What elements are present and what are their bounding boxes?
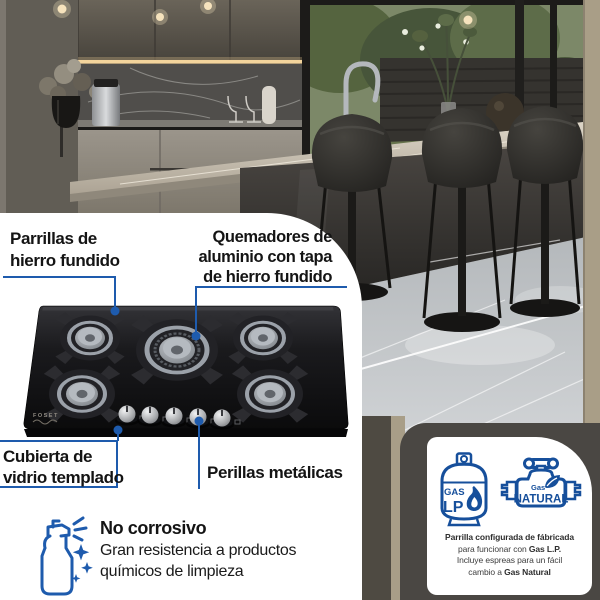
label-line: hierro fundido bbox=[10, 250, 120, 272]
label-line: vidrio templado bbox=[3, 467, 124, 488]
label-line: aluminio con tapa bbox=[158, 247, 332, 267]
label-perillas: Perillas metálicas bbox=[207, 463, 343, 483]
label-cubierta: Cubierta de vidrio templado bbox=[3, 446, 124, 488]
label-line: Cubierta de bbox=[3, 446, 124, 467]
label-line: de hierro fundido bbox=[158, 267, 332, 287]
label-quemadores: Quemadores de aluminio con tapa de hierr… bbox=[158, 227, 332, 287]
body-line: Gran resistencia a productos bbox=[100, 541, 296, 562]
label-parrillas: Parrillas de hierro fundido bbox=[10, 228, 120, 272]
paper-towel bbox=[262, 86, 276, 124]
lp-icon-lp-text: LP bbox=[443, 499, 464, 516]
label-line: Parrillas de bbox=[10, 228, 120, 250]
natural-icon-gas-text: Gas bbox=[531, 483, 545, 492]
note-line: para funcionar con Gas L.P. bbox=[427, 544, 592, 556]
no-corrosivo-body: Gran resistencia a productos químicos de… bbox=[100, 541, 296, 582]
note-line: Incluye espreas para un fácil bbox=[427, 555, 592, 567]
spray-bottle-icon bbox=[28, 514, 94, 600]
gas-card-note: Parrilla configurada de fábricada para f… bbox=[427, 532, 592, 578]
label-line: Perillas metálicas bbox=[207, 463, 343, 482]
brand-logo: FOSET bbox=[33, 413, 59, 419]
gas-info-card: GAS LP Gas NATURAL bbox=[427, 437, 592, 595]
lp-icon-gas-text: GAS bbox=[444, 487, 465, 498]
note-line: Parrilla configurada de fábricada bbox=[427, 532, 592, 544]
natural-gas-valve-icon: Gas NATURAL bbox=[499, 457, 585, 523]
flame-icon bbox=[467, 486, 482, 511]
note-line: cambio a Gas Natural bbox=[427, 567, 592, 579]
no-corrosivo-title: No corrosivo bbox=[100, 518, 206, 539]
cooktop-image: FOSET bbox=[15, 298, 360, 443]
gas-info-card-backdrop: GAS LP Gas NATURAL bbox=[400, 423, 600, 600]
natural-icon-natural-text: NATURAL bbox=[514, 494, 569, 506]
lp-gas-cylinder-icon: GAS LP bbox=[438, 451, 490, 527]
coffee-maker bbox=[92, 79, 120, 126]
label-line: Quemadores de bbox=[158, 227, 332, 247]
body-line: químicos de limpieza bbox=[100, 562, 296, 583]
